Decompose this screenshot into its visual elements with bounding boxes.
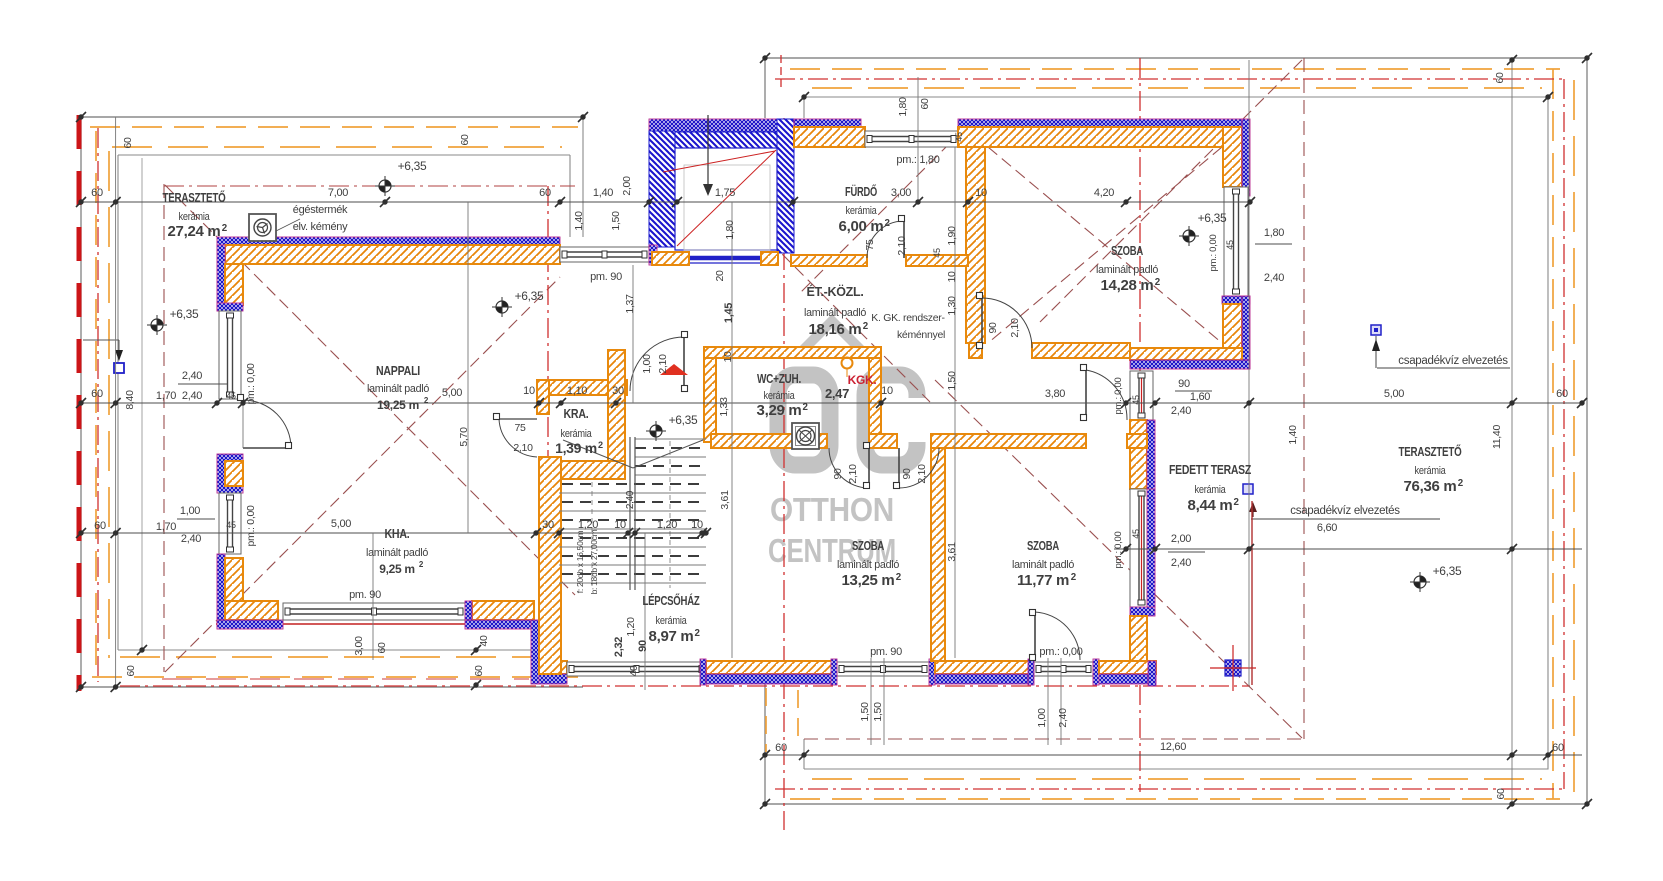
svg-text:90: 90 — [1178, 378, 1190, 390]
svg-text:csapadékvíz elvezetés: csapadékvíz elvezetés — [1290, 505, 1400, 517]
svg-text:f: 20db x 16,50cm: f: 20db x 16,50cm — [575, 531, 585, 594]
svg-text:60: 60 — [919, 98, 931, 110]
svg-text:+6,35: +6,35 — [170, 307, 199, 321]
svg-text:kerámia: kerámia — [179, 211, 211, 223]
svg-text:pm.: 0,00: pm.: 0,00 — [1113, 378, 1124, 415]
svg-text:27,24 m: 27,24 m — [168, 223, 221, 240]
svg-text:1,90: 1,90 — [946, 226, 958, 246]
svg-text:10: 10 — [881, 385, 893, 397]
svg-text:3,61: 3,61 — [719, 490, 731, 510]
svg-text:égéstermék: égéstermék — [293, 204, 348, 216]
svg-text:2,10: 2,10 — [657, 354, 669, 374]
svg-text:45: 45 — [226, 520, 236, 530]
svg-text:2,40: 2,40 — [181, 533, 201, 545]
svg-text:60: 60 — [1495, 788, 1507, 800]
svg-text:laminált padló: laminált padló — [367, 383, 429, 395]
svg-text:pm. 90: pm. 90 — [870, 646, 902, 658]
svg-text:3,61: 3,61 — [946, 542, 958, 562]
svg-text:KHA.: KHA. — [385, 527, 410, 541]
svg-text:2: 2 — [1155, 277, 1161, 288]
svg-text:2,00: 2,00 — [621, 176, 633, 196]
svg-text:12,60: 12,60 — [1160, 741, 1186, 753]
svg-text:SZOBA: SZOBA — [1111, 244, 1143, 258]
svg-text:45: 45 — [954, 132, 964, 142]
svg-text:2: 2 — [885, 218, 891, 229]
svg-text:pm.: 1,80: pm.: 1,80 — [896, 154, 939, 166]
svg-text:10: 10 — [946, 271, 958, 283]
svg-text:1,00: 1,00 — [180, 505, 200, 517]
svg-text:10: 10 — [691, 519, 703, 531]
svg-text:1,30: 1,30 — [946, 296, 958, 316]
svg-text:FÜRDŐ: FÜRDŐ — [845, 184, 877, 199]
svg-text:2,32: 2,32 — [613, 637, 625, 657]
svg-text:TERASZTETŐ: TERASZTETŐ — [1399, 444, 1462, 459]
svg-text:+6,35: +6,35 — [515, 289, 544, 303]
svg-text:pm. 90: pm. 90 — [590, 271, 622, 283]
svg-text:laminált padló: laminált padló — [804, 307, 866, 319]
svg-text:40: 40 — [628, 665, 640, 677]
svg-text:+6,35: +6,35 — [1198, 211, 1227, 225]
svg-text:OTTHON: OTTHON — [770, 491, 894, 528]
svg-text:2,40: 2,40 — [1171, 405, 1191, 417]
svg-text:2,40: 2,40 — [1171, 557, 1191, 569]
svg-text:18,16 m: 18,16 m — [809, 321, 862, 338]
svg-text:40: 40 — [478, 635, 490, 647]
svg-text:3,00: 3,00 — [353, 636, 365, 656]
svg-text:45: 45 — [226, 391, 236, 401]
svg-text:kéménnyel: kéménnyel — [897, 329, 945, 341]
svg-text:90: 90 — [987, 322, 999, 334]
svg-text:b: 18db x 27,00cm: b: 18db x 27,00cm — [589, 529, 599, 594]
svg-text:60: 60 — [1552, 742, 1564, 754]
svg-text:kerámia: kerámia — [561, 428, 593, 440]
svg-text:11,77 m: 11,77 m — [1017, 572, 1069, 589]
svg-text:2: 2 — [1234, 497, 1240, 508]
svg-text:2,40: 2,40 — [182, 390, 202, 402]
svg-text:45: 45 — [1131, 529, 1141, 539]
svg-text:2,10: 2,10 — [916, 464, 928, 484]
svg-text:1,80: 1,80 — [1264, 227, 1284, 239]
svg-text:76,36 m: 76,36 m — [1404, 478, 1457, 495]
svg-text:20: 20 — [714, 270, 726, 282]
svg-text:13,25 m: 13,25 m — [842, 572, 895, 589]
svg-text:6,00 m: 6,00 m — [839, 218, 884, 235]
svg-text:1,80: 1,80 — [724, 220, 736, 240]
svg-text:1,70: 1,70 — [156, 521, 176, 533]
svg-text:NAPPALI: NAPPALI — [376, 363, 420, 378]
svg-text:1,20: 1,20 — [657, 519, 677, 531]
svg-text:1,40: 1,40 — [1287, 425, 1299, 445]
svg-text:30: 30 — [612, 385, 624, 397]
svg-text:60: 60 — [376, 642, 388, 654]
svg-text:ÉT.-KÖZL.: ÉT.-KÖZL. — [807, 284, 864, 299]
svg-text:kerámia: kerámia — [656, 615, 688, 627]
svg-text:pm.: 0,00: pm.: 0,00 — [1113, 532, 1124, 569]
svg-text:1,50: 1,50 — [610, 211, 622, 231]
svg-text:1,33: 1,33 — [718, 397, 730, 417]
svg-text:4,20: 4,20 — [1094, 187, 1114, 199]
svg-text:10: 10 — [975, 187, 987, 199]
svg-text:2: 2 — [803, 402, 809, 413]
svg-text:10: 10 — [614, 519, 626, 531]
svg-text:45: 45 — [1225, 240, 1235, 250]
svg-text:pm.: 0,00: pm.: 0,00 — [1208, 235, 1219, 272]
svg-text:1,00: 1,00 — [1036, 708, 1048, 728]
svg-text:+6,35: +6,35 — [1433, 564, 1462, 578]
svg-text:laminált padló: laminált padló — [837, 559, 899, 571]
svg-text:60: 60 — [473, 665, 485, 677]
svg-text:KGK.: KGK. — [848, 373, 877, 387]
svg-text:SZOBA: SZOBA — [1027, 539, 1059, 553]
svg-text:14,28 m: 14,28 m — [1101, 277, 1154, 294]
svg-text:laminált padló: laminált padló — [1096, 264, 1158, 276]
svg-text:2: 2 — [222, 223, 228, 234]
svg-text:KRA.: KRA. — [564, 407, 589, 421]
svg-text:pm.: 0,00: pm.: 0,00 — [245, 363, 257, 405]
svg-text:7,00: 7,00 — [328, 187, 348, 199]
svg-text:2: 2 — [896, 572, 902, 583]
svg-text:1,20: 1,20 — [578, 519, 598, 531]
svg-text:1,39 m: 1,39 m — [555, 440, 597, 456]
svg-text:laminált padló: laminált padló — [366, 547, 428, 559]
svg-text:10: 10 — [722, 351, 734, 363]
svg-text:csapadékvíz elvezetés: csapadékvíz elvezetés — [1398, 355, 1508, 367]
svg-text:5,00: 5,00 — [331, 518, 351, 530]
svg-text:2: 2 — [598, 440, 603, 450]
svg-text:60: 60 — [91, 388, 103, 400]
svg-text:pm.: 0,00: pm.: 0,00 — [1039, 646, 1082, 658]
svg-text:60: 60 — [1494, 72, 1506, 84]
svg-text:2,40: 2,40 — [182, 370, 202, 382]
svg-text:2,40: 2,40 — [1264, 272, 1284, 284]
svg-text:2,00: 2,00 — [1171, 533, 1191, 545]
svg-text:2: 2 — [695, 628, 701, 639]
svg-text:45: 45 — [1131, 395, 1141, 405]
svg-text:+6,35: +6,35 — [398, 159, 427, 173]
svg-text:19,25 m: 19,25 m — [377, 398, 419, 412]
svg-text:90: 90 — [832, 468, 844, 480]
svg-text:6,60: 6,60 — [1317, 522, 1337, 534]
svg-text:1,70: 1,70 — [156, 390, 176, 402]
svg-text:30: 30 — [542, 519, 554, 531]
svg-text:SZOBA: SZOBA — [852, 539, 884, 553]
svg-text:1,00: 1,00 — [641, 354, 653, 374]
svg-text:10: 10 — [523, 385, 535, 397]
svg-text:2: 2 — [1071, 572, 1077, 583]
svg-text:LÉPCSŐHÁZ: LÉPCSŐHÁZ — [643, 593, 701, 608]
svg-text:kerámia: kerámia — [764, 390, 796, 402]
svg-text:laminált padló: laminált padló — [1012, 559, 1074, 571]
svg-text:60: 60 — [125, 665, 137, 677]
svg-text:2,10: 2,10 — [513, 442, 533, 454]
svg-text:2,10: 2,10 — [1009, 318, 1021, 338]
svg-text:1,40: 1,40 — [573, 211, 585, 231]
svg-text:1,45: 1,45 — [723, 303, 735, 323]
svg-text:2: 2 — [1458, 478, 1464, 489]
svg-text:1,50: 1,50 — [946, 371, 958, 391]
svg-text:2,47: 2,47 — [825, 386, 849, 401]
svg-text:1,40: 1,40 — [593, 187, 613, 199]
svg-text:60: 60 — [122, 137, 134, 149]
svg-text:1,20: 1,20 — [625, 617, 637, 637]
svg-text:5,70: 5,70 — [458, 427, 470, 447]
svg-text:1,60: 1,60 — [1190, 391, 1210, 403]
svg-text:pm.: 0,00: pm.: 0,00 — [245, 505, 257, 547]
svg-text:1,75: 1,75 — [715, 187, 735, 199]
svg-text:8,97 m: 8,97 m — [649, 628, 694, 645]
svg-text:1,10: 1,10 — [567, 385, 587, 397]
svg-text:1,50: 1,50 — [872, 702, 884, 722]
svg-text:60: 60 — [94, 520, 106, 532]
svg-text:75: 75 — [514, 422, 526, 434]
svg-text:60: 60 — [91, 187, 103, 199]
svg-text:WC+ZUH.: WC+ZUH. — [757, 372, 801, 386]
svg-text:75: 75 — [864, 239, 876, 251]
svg-text:2,40: 2,40 — [1057, 708, 1069, 728]
svg-text:3,00: 3,00 — [891, 187, 911, 199]
svg-text:60: 60 — [1556, 388, 1568, 400]
svg-text:3,80: 3,80 — [1045, 388, 1065, 400]
svg-text:1,80: 1,80 — [897, 97, 909, 117]
svg-text:90: 90 — [637, 640, 649, 652]
svg-text:5,00: 5,00 — [442, 387, 462, 399]
svg-text:1,50: 1,50 — [859, 702, 871, 722]
svg-text:3,29 m: 3,29 m — [757, 402, 802, 419]
svg-text:elv. kémény: elv. kémény — [293, 221, 348, 233]
svg-text:TERASZTETŐ: TERASZTETŐ — [163, 190, 226, 205]
svg-text:90: 90 — [901, 468, 913, 480]
svg-text:FEDETT TERASZ: FEDETT TERASZ — [1169, 463, 1252, 477]
svg-text:kerámia: kerámia — [846, 205, 878, 217]
svg-text:+6,35: +6,35 — [669, 413, 698, 427]
svg-text:2,10: 2,10 — [847, 464, 859, 484]
svg-text:2,40: 2,40 — [625, 490, 636, 509]
svg-text:8,40: 8,40 — [124, 390, 136, 410]
svg-text:K. GK. rendszer-: K. GK. rendszer- — [871, 312, 945, 324]
svg-text:8,44 m: 8,44 m — [1188, 497, 1233, 514]
svg-text:kerámia: kerámia — [1195, 484, 1227, 496]
svg-text:60: 60 — [775, 742, 787, 754]
svg-text:1,37: 1,37 — [624, 294, 636, 314]
svg-text:9,25 m: 9,25 m — [379, 562, 415, 576]
svg-text:pm. 90: pm. 90 — [349, 589, 381, 601]
svg-text:2: 2 — [863, 321, 869, 332]
svg-text:5,00: 5,00 — [1384, 388, 1404, 400]
svg-text:60: 60 — [459, 134, 471, 146]
svg-text:11,40: 11,40 — [1491, 425, 1503, 449]
svg-text:60: 60 — [539, 187, 551, 199]
svg-text:45: 45 — [932, 248, 942, 258]
svg-text:kerámia: kerámia — [1415, 465, 1447, 477]
svg-text:2,10: 2,10 — [896, 236, 908, 256]
